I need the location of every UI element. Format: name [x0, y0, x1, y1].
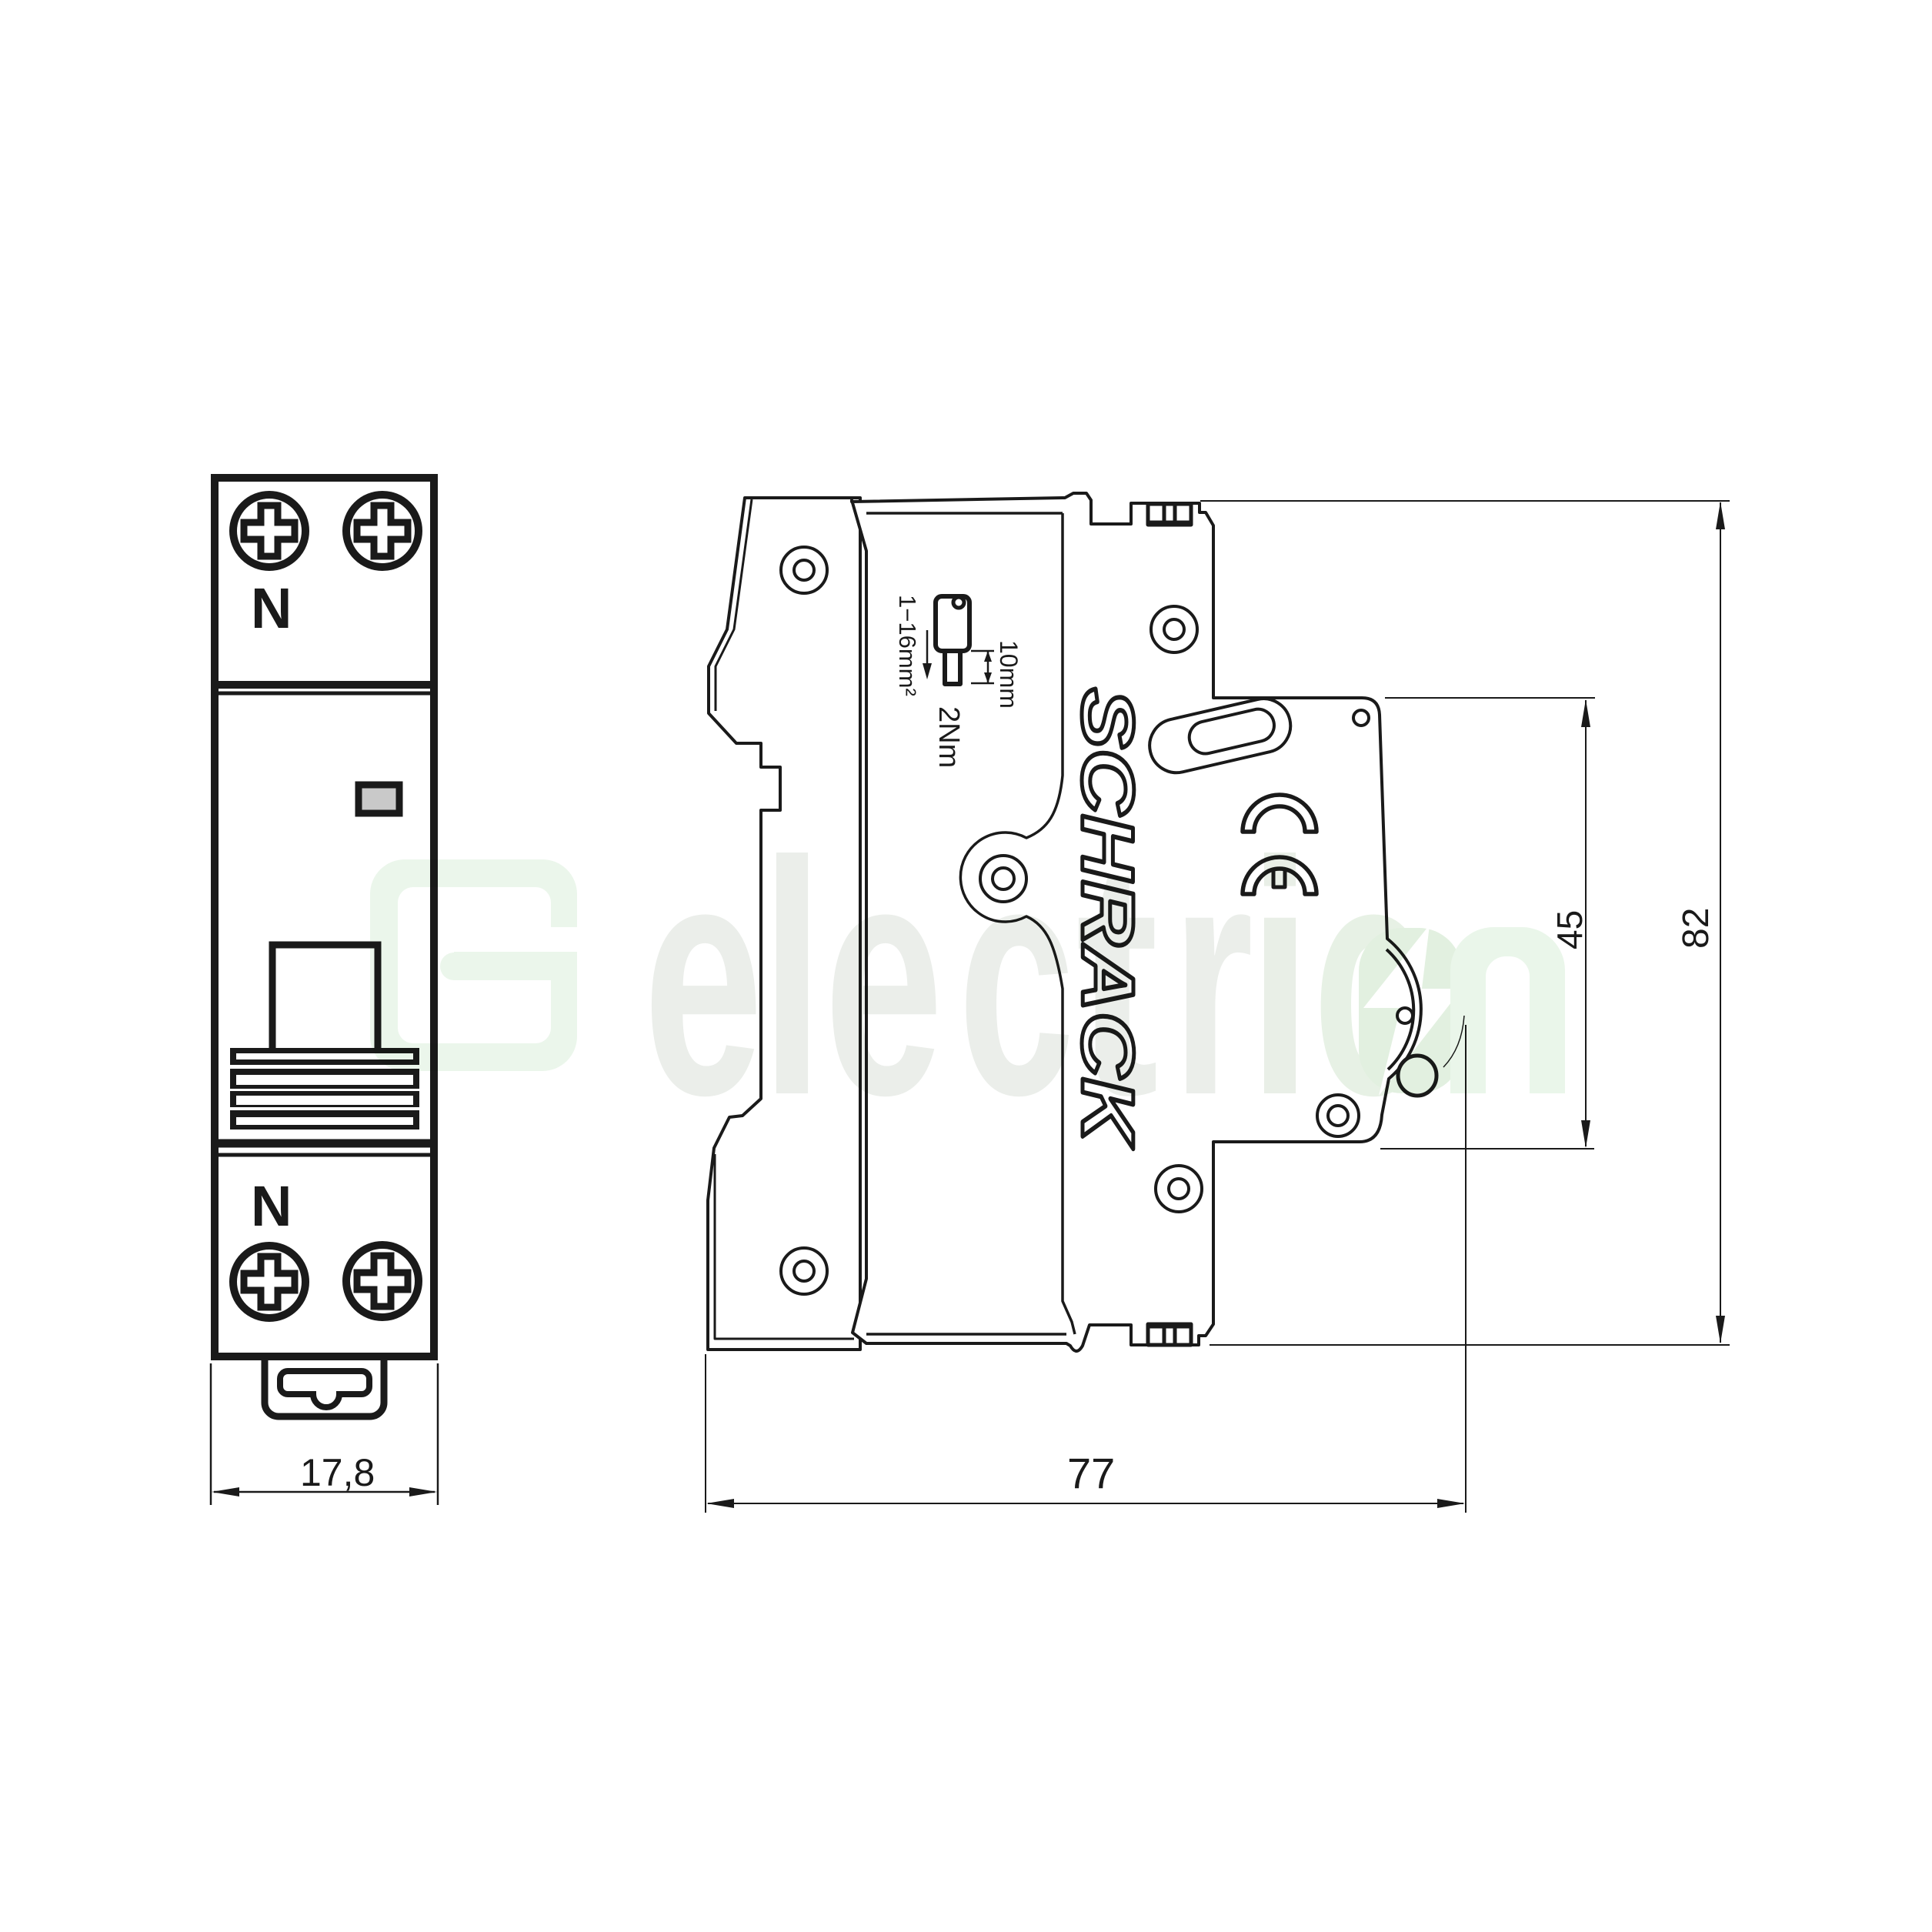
- svg-text:r: r: [1172, 792, 1253, 1164]
- svg-text:82: 82: [1676, 908, 1717, 949]
- svg-text:l: l: [760, 792, 824, 1164]
- svg-text:17,8: 17,8: [300, 1451, 375, 1494]
- svg-text:77: 77: [1067, 1449, 1115, 1497]
- svg-text:e: e: [824, 792, 943, 1164]
- svg-text:e: e: [643, 792, 763, 1164]
- svg-text:N: N: [251, 576, 292, 640]
- svg-text:2Nm: 2Nm: [933, 706, 965, 768]
- svg-text:1−16mm²: 1−16mm²: [894, 595, 921, 696]
- svg-text:N: N: [251, 1174, 292, 1238]
- svg-text:i: i: [1248, 792, 1312, 1164]
- svg-text:c: c: [958, 792, 1075, 1164]
- svg-text:10mm: 10mm: [995, 640, 1023, 709]
- svg-text:t: t: [1076, 792, 1159, 1164]
